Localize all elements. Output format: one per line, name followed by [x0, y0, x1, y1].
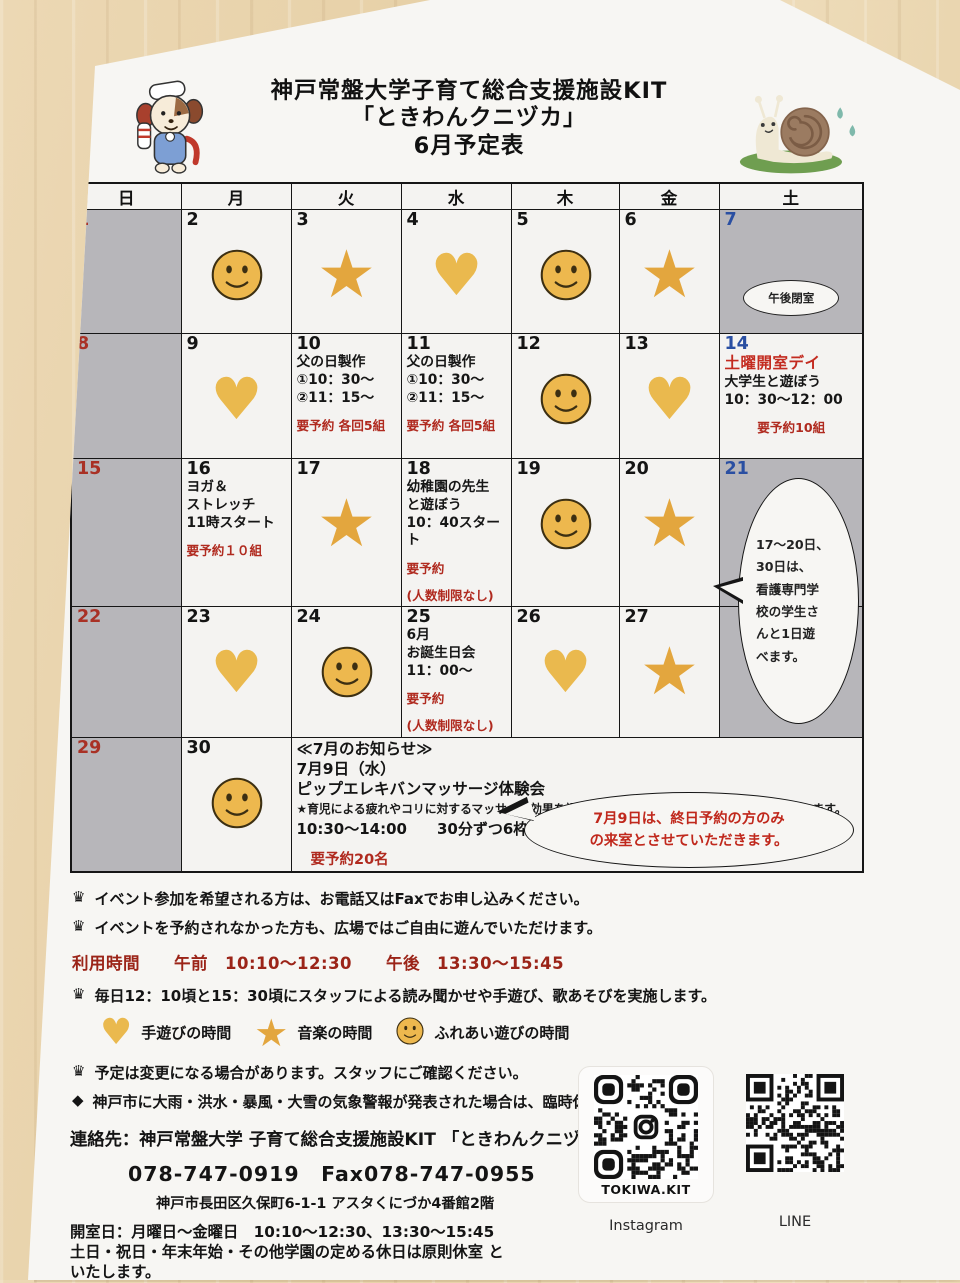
contact-address-line: 神戸市長田区久保町6-1-1 アスタくにづか4番館2階 [156, 1192, 590, 1213]
calendar-day-cell: 7午後閉室 [719, 210, 863, 334]
calendar-day-cell: 6★ [619, 210, 719, 334]
weekday-header: 日 [71, 183, 181, 210]
heart-icon: ♥ [187, 635, 287, 709]
dog-nurse-mascot-illustration [130, 78, 218, 176]
day-number: 15 [77, 460, 177, 479]
july-notice-heading: ≪7月のお知らせ≫ [297, 739, 859, 759]
bubble-text-line: んと1日遊 [756, 623, 858, 645]
contact-phone-line: 078-747-0919 Fax078-747-0955 [128, 1157, 590, 1187]
note-text: イベントを予約されなかった方も、広場ではご自由に遊んでいただけます。 [94, 917, 601, 938]
event-text-line: 要予約１０組 [187, 543, 287, 559]
event-text-line: (人数制限なし) [407, 718, 507, 734]
facility-subtitle: 「ときわんクニヅカ」 [218, 105, 720, 132]
snail-illustration [720, 88, 876, 176]
bubble-tail [720, 580, 746, 602]
crown-icon: ♛ [72, 985, 85, 1005]
event-text-line: 11：00～ [407, 663, 507, 681]
note-text: 神戸市に大雨・洪水・暴風・大雪の気象警報が発表された場合は、臨時休室します。 [93, 1091, 662, 1112]
line-qr-column: LINE [746, 1066, 844, 1230]
bubble-text-line: 看護専門学 [756, 579, 858, 601]
calendar-day-cell: 1 [71, 210, 181, 334]
weekday-header: 火 [291, 183, 401, 210]
heart-icon: ♥ [100, 1015, 132, 1051]
day-number: 25 [407, 608, 507, 627]
smile-icon [187, 766, 287, 840]
day-number: 9 [187, 335, 287, 354]
event-text-line: 10：40スター [407, 515, 507, 533]
event-text-line: 11時スタート [187, 515, 287, 533]
afternoon-closed-bubble: 午後閉室 [743, 280, 839, 316]
event-text-line: ②11：15～ [407, 390, 507, 408]
note-line: ♛イベント参加を希望される方は、お電話又はFaxでお申し込みください。 [72, 888, 872, 909]
legend-label: 音楽の時間 [297, 1022, 372, 1043]
calendar-day-cell: 256月お誕生日会11：00～要予約(人数制限なし) [401, 607, 511, 737]
day-number: 27 [625, 608, 715, 627]
event-text-line: ストレッチ [187, 497, 287, 515]
calendar-week-row: 2930≪7月のお知らせ≫7月9日（水）ピップエレキバンマッサージ体験会★育児に… [71, 737, 863, 872]
note-text: 利用時間 午前 10:10～12:30 午後 13:30～15:45 [72, 950, 564, 974]
star-icon: ★ [254, 1014, 288, 1052]
day-number: 19 [517, 460, 615, 479]
bubble-text-line: べます。 [756, 646, 858, 668]
calendar-day-cell: 14土曜開室デイ大学生と遊ぼう10：30～12：00要予約10組 [719, 334, 863, 459]
event-text-line: (人数制限なし) [407, 588, 507, 604]
line-caption: LINE [779, 1214, 811, 1230]
event-text-line: 要予約 [407, 691, 507, 707]
calendar-week-row: 123★4♥56★7午後閉室 [71, 210, 863, 334]
calendar-day-cell: 13♥ [619, 334, 719, 459]
calendar-day-cell: 2 [181, 210, 291, 334]
star-icon: ★ [625, 238, 715, 312]
flyer-content: 神戸常盤大学子育て総合支援施設KIT 「ときわんクニヅカ」 6月予定表 [70, 78, 870, 1283]
calendar-day-cell: 10父の日製作①10：30～②11：15～要予約 各回5組 [291, 334, 401, 459]
facility-title: 神戸常盤大学子育て総合支援施設KIT [218, 78, 720, 105]
note-line: ♛イベントを予約されなかった方も、広場ではご自由に遊んでいただけます。 [72, 917, 872, 938]
calendar-day-cell: 9♥ [181, 334, 291, 459]
bubble-text-line: 校の学生さ [756, 601, 858, 623]
calendar-day-cell: 27★ [619, 607, 719, 737]
bubble-text-line: の来室とさせていただきます。 [590, 830, 789, 852]
calendar-day-cell: 19 [511, 459, 619, 607]
contact-org-line: 連絡先：神戸常盤大学 子育て総合支援施設KIT 「ときわんクニヅカ」 [70, 1125, 590, 1150]
event-text-line: 10：30～12：00 [725, 392, 859, 410]
contact-section: 連絡先：神戸常盤大学 子育て総合支援施設KIT 「ときわんクニヅカ」 078-7… [70, 1125, 590, 1283]
day-number: 8 [77, 335, 177, 354]
event-text-line: 父の日製作 [407, 354, 507, 372]
note-line: 利用時間 午前 10:10～12:30 午後 13:30～15:45 [72, 950, 872, 974]
day-number: 22 [77, 608, 177, 627]
bubble-text-line: 30日は、 [756, 556, 858, 578]
heart-icon: ♥ [407, 238, 507, 312]
day-number: 5 [517, 211, 615, 230]
legend-label: ふれあい遊びの時間 [434, 1022, 569, 1043]
qr-code-area: TOKIWA.KIT Instagram LINE [578, 1066, 844, 1234]
bubble-text-line: 17～20日、 [756, 534, 858, 556]
heart-icon: ♥ [517, 635, 615, 709]
star-icon: ★ [625, 487, 715, 561]
event-text-line: 6月 [407, 627, 507, 645]
crown-icon: ♛ [72, 1062, 85, 1082]
instagram-qr-card: TOKIWA.KIT [578, 1066, 714, 1203]
event-text-line: と遊ぼう [407, 497, 507, 515]
july-notice-date: 7月9日（水） [297, 759, 859, 779]
day-number: 23 [187, 608, 287, 627]
calendar-day-cell: 3★ [291, 210, 401, 334]
note-text: イベント参加を希望される方は、お電話又はFaxでお申し込みください。 [94, 888, 588, 909]
event-text-line: ①10：30～ [297, 372, 397, 390]
day-number: 10 [297, 335, 397, 354]
star-icon: ★ [625, 635, 715, 709]
calendar-week-row: 89♥10父の日製作①10：30～②11：15～要予約 各回5組11父の日製作①… [71, 334, 863, 459]
smile-icon [517, 238, 615, 312]
calendar-day-cell: 24 [291, 607, 401, 737]
month-title: 6月予定表 [218, 133, 720, 160]
smile-icon [395, 1016, 425, 1050]
day-number: 3 [297, 211, 397, 230]
weekday-header-row: 日月火水木金土 [71, 183, 863, 210]
event-text-line: ②11：15～ [297, 390, 397, 408]
calendar-day-cell: 18幼稚園の先生と遊ぼう10：40スタート要予約(人数制限なし) [401, 459, 511, 607]
day-number: 4 [407, 211, 507, 230]
day-number: 16 [187, 460, 287, 479]
calendar-day-cell: 17★ [291, 459, 401, 607]
heart-icon: ♥ [625, 362, 715, 436]
day-number: 20 [625, 460, 715, 479]
day-number: 7 [725, 211, 859, 230]
july-reservation-speech-bubble: 7月9日は、終日予約の方のみの来室とさせていただきます。 [524, 792, 854, 868]
calendar-day-cell: 16ヨガ＆ストレッチ11時スタート要予約１０組 [181, 459, 291, 607]
calendar-day-cell: 26♥ [511, 607, 619, 737]
flyer-header: 神戸常盤大学子育て総合支援施設KIT 「ときわんクニヅカ」 6月予定表 [70, 78, 870, 180]
event-text-line: 要予約 各回5組 [297, 418, 397, 434]
paper-flyer: 神戸常盤大学子育て総合支援施設KIT 「ときわんクニヅカ」 6月予定表 [0, 0, 960, 1280]
legend-label: 手遊びの時間 [141, 1022, 231, 1043]
crown-icon: ♛ [72, 888, 85, 908]
note-text: 毎日12：10頃と15：30頃にスタッフによる読み聞かせや手遊び、歌あそびを実施… [94, 985, 716, 1006]
smile-icon [517, 362, 615, 436]
crown-icon: ♛ [72, 917, 85, 937]
day-number: 6 [625, 211, 715, 230]
calendar-day-cell: 4♥ [401, 210, 511, 334]
day-number: 30 [187, 739, 287, 758]
smile-icon [297, 635, 397, 709]
heart-icon: ♥ [187, 362, 287, 436]
diamond-icon: ◆ [72, 1091, 84, 1111]
smile-icon [187, 238, 287, 312]
calendar-day-cell: 20★ [619, 459, 719, 607]
july-notice-event: ピップエレキバンマッサージ体験会 [297, 779, 859, 799]
icon-legend-row: ♥手遊びの時間★音楽の時間ふれあい遊びの時間 [100, 1014, 872, 1052]
note-line: ♛毎日12：10頃と15：30頃にスタッフによる読み聞かせや手遊び、歌あそびを実… [72, 985, 872, 1006]
calendar-day-cell: 30 [181, 737, 291, 872]
weekday-header: 木 [511, 183, 619, 210]
weekday-header: 金 [619, 183, 719, 210]
opening-hours-line: 開室日：月曜日～金曜日 10:10～12:30、13:30～15:45 [70, 1222, 590, 1242]
day-number: 2 [187, 211, 287, 230]
opening-hours-line: 土日・祝日・年末年始・その他学園の定める休日は原則休室 と [70, 1242, 590, 1262]
calendar-day-cell: 15 [71, 459, 181, 607]
day-number: 1 [77, 211, 177, 230]
event-text-line: 要予約10組 [725, 420, 859, 436]
event-text-line: ヨガ＆ [187, 479, 287, 497]
weekday-header: 月 [181, 183, 291, 210]
event-text-line: ①10：30～ [407, 372, 507, 390]
calendar-day-cell: 11父の日製作①10：30～②11：15～要予約 各回5組 [401, 334, 511, 459]
day-number: 24 [297, 608, 397, 627]
instagram-account-label: TOKIWA.KIT [585, 1182, 707, 1197]
calendar-table: 日月火水木金土 123★4♥56★7午後閉室89♥10父の日製作①10：30～②… [70, 182, 864, 873]
line-qr-code [746, 1074, 844, 1172]
instagram-caption: Instagram [609, 1218, 683, 1234]
event-text-line: 要予約 各回5組 [407, 418, 507, 434]
calendar-day-cell: 5 [511, 210, 619, 334]
instagram-qr-column: TOKIWA.KIT Instagram [578, 1066, 714, 1234]
opening-hours-block: 開室日：月曜日～金曜日 10:10～12:30、13:30～15:45 土日・祝… [70, 1222, 590, 1283]
day-number: 11 [407, 335, 507, 354]
day-number: 17 [297, 460, 397, 479]
bubble-text-line: 7月9日は、終日予約の方のみ [593, 808, 784, 830]
july-notice-cell: ≪7月のお知らせ≫7月9日（水）ピップエレキバンマッサージ体験会★育児による疲れ… [291, 737, 863, 872]
star-icon: ★ [297, 487, 397, 561]
calendar-day-cell: 8 [71, 334, 181, 459]
event-text-line: 要予約 [407, 561, 507, 577]
calendar-day-cell: 12 [511, 334, 619, 459]
nursing-students-speech-bubble: 17～20日、30日は、看護専門学校の学生さんと1日遊べます。 [738, 478, 859, 724]
opening-hours-line: いたします。 [70, 1262, 590, 1282]
event-text-line: ト [407, 532, 507, 550]
day-number: 13 [625, 335, 715, 354]
note-text: 予定は変更になる場合があります。スタッフにご確認ください。 [94, 1062, 527, 1083]
day-number: 18 [407, 460, 507, 479]
event-text-line: 父の日製作 [297, 354, 397, 372]
event-text-line: 大学生と遊ぼう [725, 374, 859, 392]
calendar-day-cell: 23♥ [181, 607, 291, 737]
weekday-header: 水 [401, 183, 511, 210]
day-number: 21 [725, 460, 859, 479]
calendar-day-cell: 22 [71, 607, 181, 737]
day-number: 12 [517, 335, 615, 354]
star-icon: ★ [297, 238, 397, 312]
smile-icon [517, 487, 615, 561]
event-text-line: 土曜開室デイ [725, 354, 859, 374]
event-text-line: 幼稚園の先生 [407, 479, 507, 497]
title-block: 神戸常盤大学子育て総合支援施設KIT 「ときわんクニヅカ」 6月予定表 [218, 78, 720, 160]
day-number: 14 [725, 335, 859, 354]
calendar-day-cell: 29 [71, 737, 181, 872]
calendar: 日月火水木金土 123★4♥56★7午後閉室89♥10父の日製作①10：30～②… [70, 182, 862, 873]
instagram-qr-code [594, 1075, 698, 1179]
weekday-header: 土 [719, 183, 863, 210]
day-number: 26 [517, 608, 615, 627]
day-number: 29 [77, 739, 177, 758]
event-text-line: お誕生日会 [407, 645, 507, 663]
